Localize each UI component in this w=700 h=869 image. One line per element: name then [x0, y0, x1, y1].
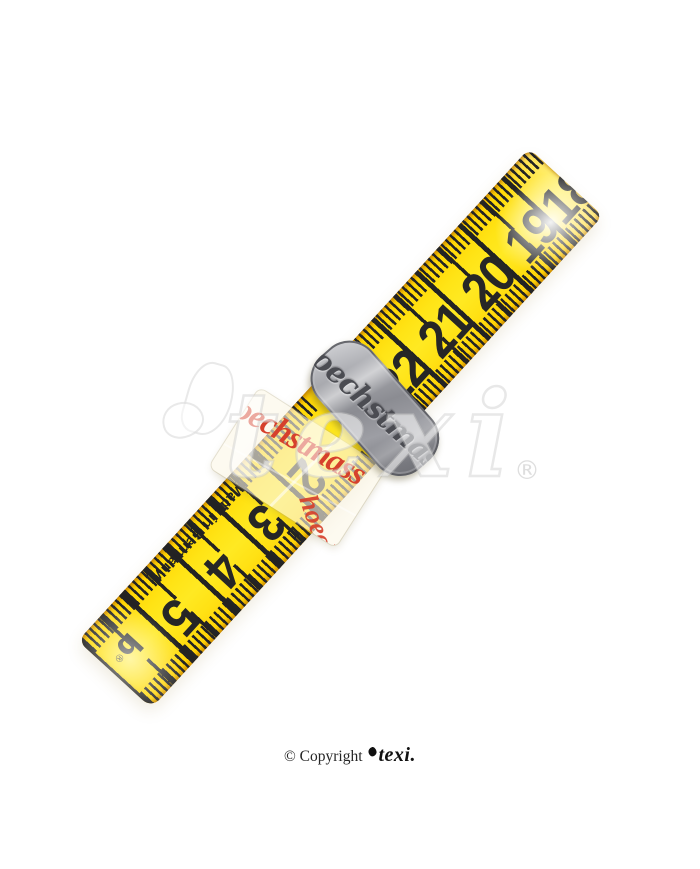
copyright-brand: texi. — [379, 744, 417, 766]
measuring-tape-strip: 18 19 20 21 22 2 3 4 5 Made in Germany b… — [78, 148, 603, 708]
watermark-logo-blob-icon — [158, 397, 207, 442]
copyright-line: © Copyrighttexi. — [0, 745, 700, 768]
copyright-prefix: © Copyright — [284, 748, 363, 765]
watermark-logo-blob-icon — [177, 357, 242, 441]
product-photo-page: { "photo": { "background_color": "#fffff… — [0, 0, 700, 869]
watermark-registered-icon: ® — [514, 458, 540, 484]
texi-logo-mark-icon — [367, 746, 377, 757]
